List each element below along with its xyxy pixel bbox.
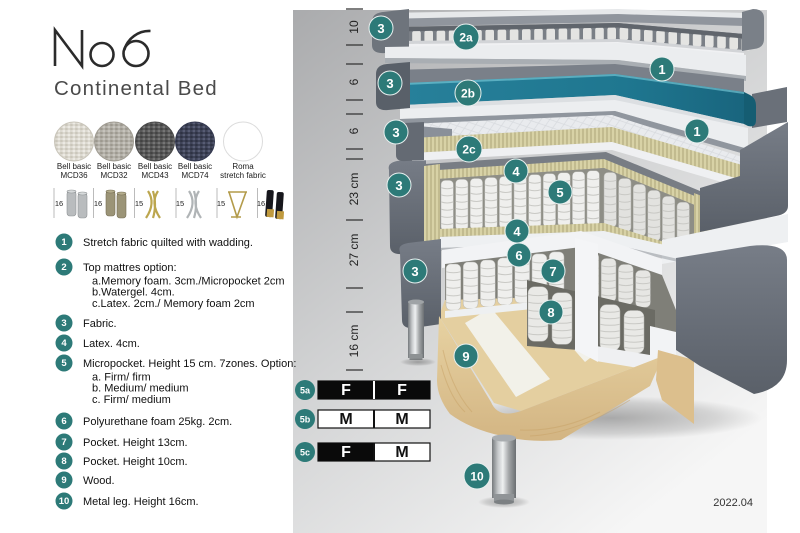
svg-text:23 cm: 23 cm — [347, 173, 361, 206]
svg-text:16: 16 — [55, 199, 63, 208]
svg-text:MCD74: MCD74 — [181, 171, 209, 180]
svg-text:6: 6 — [347, 78, 361, 85]
svg-text:15: 15 — [135, 199, 143, 208]
svg-text:16: 16 — [257, 199, 265, 208]
svg-text:M: M — [339, 411, 352, 428]
svg-text:1: 1 — [693, 124, 700, 139]
svg-text:Stretch fabric quilted with wa: Stretch fabric quilted with wadding. — [83, 237, 253, 249]
svg-text:3: 3 — [395, 178, 402, 193]
svg-text:2b: 2b — [461, 87, 475, 101]
svg-text:Metal leg. Height 16cm.: Metal leg. Height 16cm. — [83, 496, 199, 508]
svg-text:3: 3 — [392, 125, 399, 140]
svg-text:5: 5 — [556, 185, 563, 200]
svg-text:MCD36: MCD36 — [60, 171, 88, 180]
svg-text:Roma: Roma — [232, 162, 254, 171]
svg-text:c. Firm/ medium: c. Firm/ medium — [92, 394, 171, 406]
svg-text:8: 8 — [61, 456, 66, 467]
svg-text:5: 5 — [61, 358, 67, 369]
svg-text:15: 15 — [176, 199, 184, 208]
svg-text:8: 8 — [547, 305, 554, 320]
svg-text:2a: 2a — [459, 31, 473, 45]
svg-text:Bell basic: Bell basic — [178, 162, 212, 171]
svg-text:Wood.: Wood. — [83, 475, 115, 487]
svg-text:3: 3 — [377, 21, 384, 36]
svg-text:Continental Bed: Continental Bed — [54, 77, 218, 100]
svg-text:b. Medium/ medium: b. Medium/ medium — [92, 383, 189, 395]
svg-text:6: 6 — [515, 248, 522, 263]
svg-text:1: 1 — [61, 237, 67, 248]
svg-text:6: 6 — [347, 127, 361, 134]
svg-text:15: 15 — [217, 199, 225, 208]
svg-text:Micropocket. Height 15 cm. 7zo: Micropocket. Height 15 cm. 7zones. Optio… — [83, 358, 296, 370]
svg-text:1: 1 — [658, 62, 665, 77]
svg-text:F: F — [341, 382, 351, 399]
svg-text:2: 2 — [61, 262, 66, 273]
svg-text:6: 6 — [61, 416, 66, 427]
svg-text:Bell basic: Bell basic — [138, 162, 172, 171]
svg-text:10: 10 — [59, 496, 70, 507]
svg-text:4: 4 — [512, 164, 520, 179]
svg-text:7: 7 — [549, 264, 556, 279]
svg-text:M: M — [395, 444, 408, 461]
svg-text:c.Latex. 2cm./ Memory foam 2cm: c.Latex. 2cm./ Memory foam 2cm — [92, 298, 255, 310]
svg-text:Pocket. Height 13cm.: Pocket. Height 13cm. — [83, 437, 188, 449]
svg-text:16 cm: 16 cm — [347, 325, 361, 358]
svg-text:4: 4 — [513, 224, 521, 239]
svg-text:F: F — [397, 382, 407, 399]
svg-text:9: 9 — [61, 475, 66, 486]
svg-text:Pocket. Height 10cm.: Pocket. Height 10cm. — [83, 456, 188, 468]
svg-text:stretch fabric: stretch fabric — [220, 171, 266, 180]
svg-text:3: 3 — [411, 264, 418, 279]
svg-text:M: M — [395, 411, 408, 428]
svg-text:7: 7 — [61, 437, 66, 448]
svg-text:Top mattres option:: Top mattres option: — [83, 262, 177, 274]
svg-text:5c: 5c — [300, 448, 310, 458]
svg-text:3: 3 — [386, 76, 393, 91]
svg-text:2c: 2c — [462, 143, 476, 157]
svg-text:9: 9 — [462, 349, 469, 364]
svg-text:10: 10 — [470, 470, 484, 484]
svg-text:Bell basic: Bell basic — [57, 162, 91, 171]
svg-text:Latex. 4cm.: Latex. 4cm. — [83, 338, 140, 350]
svg-text:5b: 5b — [300, 415, 311, 425]
svg-text:16: 16 — [94, 199, 102, 208]
svg-text:F: F — [341, 444, 351, 461]
svg-text:MCD43: MCD43 — [141, 171, 169, 180]
svg-text:4: 4 — [61, 338, 67, 349]
svg-text:2022.04: 2022.04 — [713, 497, 753, 509]
svg-text:27 cm: 27 cm — [347, 234, 361, 267]
svg-text:MCD32: MCD32 — [100, 171, 128, 180]
svg-text:Polyurethane foam 25kg. 2cm.: Polyurethane foam 25kg. 2cm. — [83, 416, 232, 428]
svg-text:10: 10 — [347, 20, 361, 34]
svg-text:5a: 5a — [300, 386, 311, 396]
svg-text:3: 3 — [61, 318, 66, 329]
svg-text:b.Watergel. 4cm.: b.Watergel. 4cm. — [92, 287, 175, 299]
svg-text:Bell basic: Bell basic — [97, 162, 131, 171]
svg-text:Fabric.: Fabric. — [83, 318, 117, 330]
